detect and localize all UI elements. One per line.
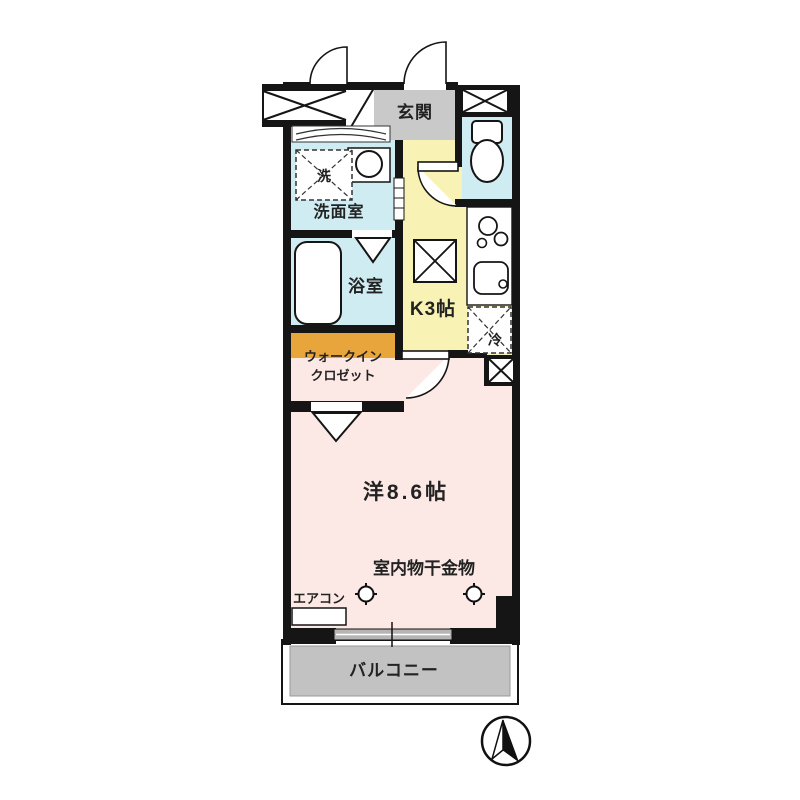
walkin-closet-label-line2: クロゼット	[310, 368, 375, 383]
aircon-label: エアコン	[293, 591, 345, 606]
pipe-shaft-top-icon	[463, 90, 507, 112]
kitchen-label: K3帖	[410, 297, 456, 320]
closet-door-gap	[311, 402, 362, 411]
hall-slide-door-icon	[394, 178, 404, 220]
vanity-sink-icon	[348, 148, 390, 182]
entrance-step-line	[348, 88, 374, 132]
walkin-closet-label-line1: ウォークイン	[304, 349, 382, 364]
genkan-label: 玄関	[397, 102, 433, 122]
balcony-label: バルコニー	[349, 661, 439, 680]
bathroom-door-gap	[352, 230, 392, 238]
aircon-unit-icon	[292, 608, 346, 625]
kitchen-hatch-icon	[414, 240, 456, 282]
washroom-window-icon	[292, 126, 390, 142]
kitchen-counter-icon	[467, 207, 512, 305]
floor-plan-drawing: 洗 冷 玄関 洗面室 浴室 ウォーク	[0, 0, 800, 800]
entry-doors	[310, 42, 446, 84]
main-room-label: 洋8.6帖	[363, 480, 449, 504]
pipe-shaft-mid-icon	[484, 355, 518, 386]
floor-plan-canvas: 洗 冷 玄関 洗面室 浴室 ウォーク	[0, 0, 800, 800]
toilet-icon	[471, 121, 503, 182]
fridge-label: 冷	[488, 332, 502, 348]
porch-door-swing-icon	[310, 47, 347, 84]
washroom-label: 洗面室	[313, 202, 364, 221]
washer-label: 洗	[317, 168, 331, 184]
entrance-door-swing-icon	[404, 42, 446, 84]
bathtub-icon	[295, 242, 341, 324]
meter-box-icon	[263, 84, 346, 127]
laundry-hardware-label: 室内物干金物	[373, 558, 475, 578]
bathroom-label: 浴室	[348, 276, 384, 296]
north-arrow-icon	[482, 717, 530, 765]
